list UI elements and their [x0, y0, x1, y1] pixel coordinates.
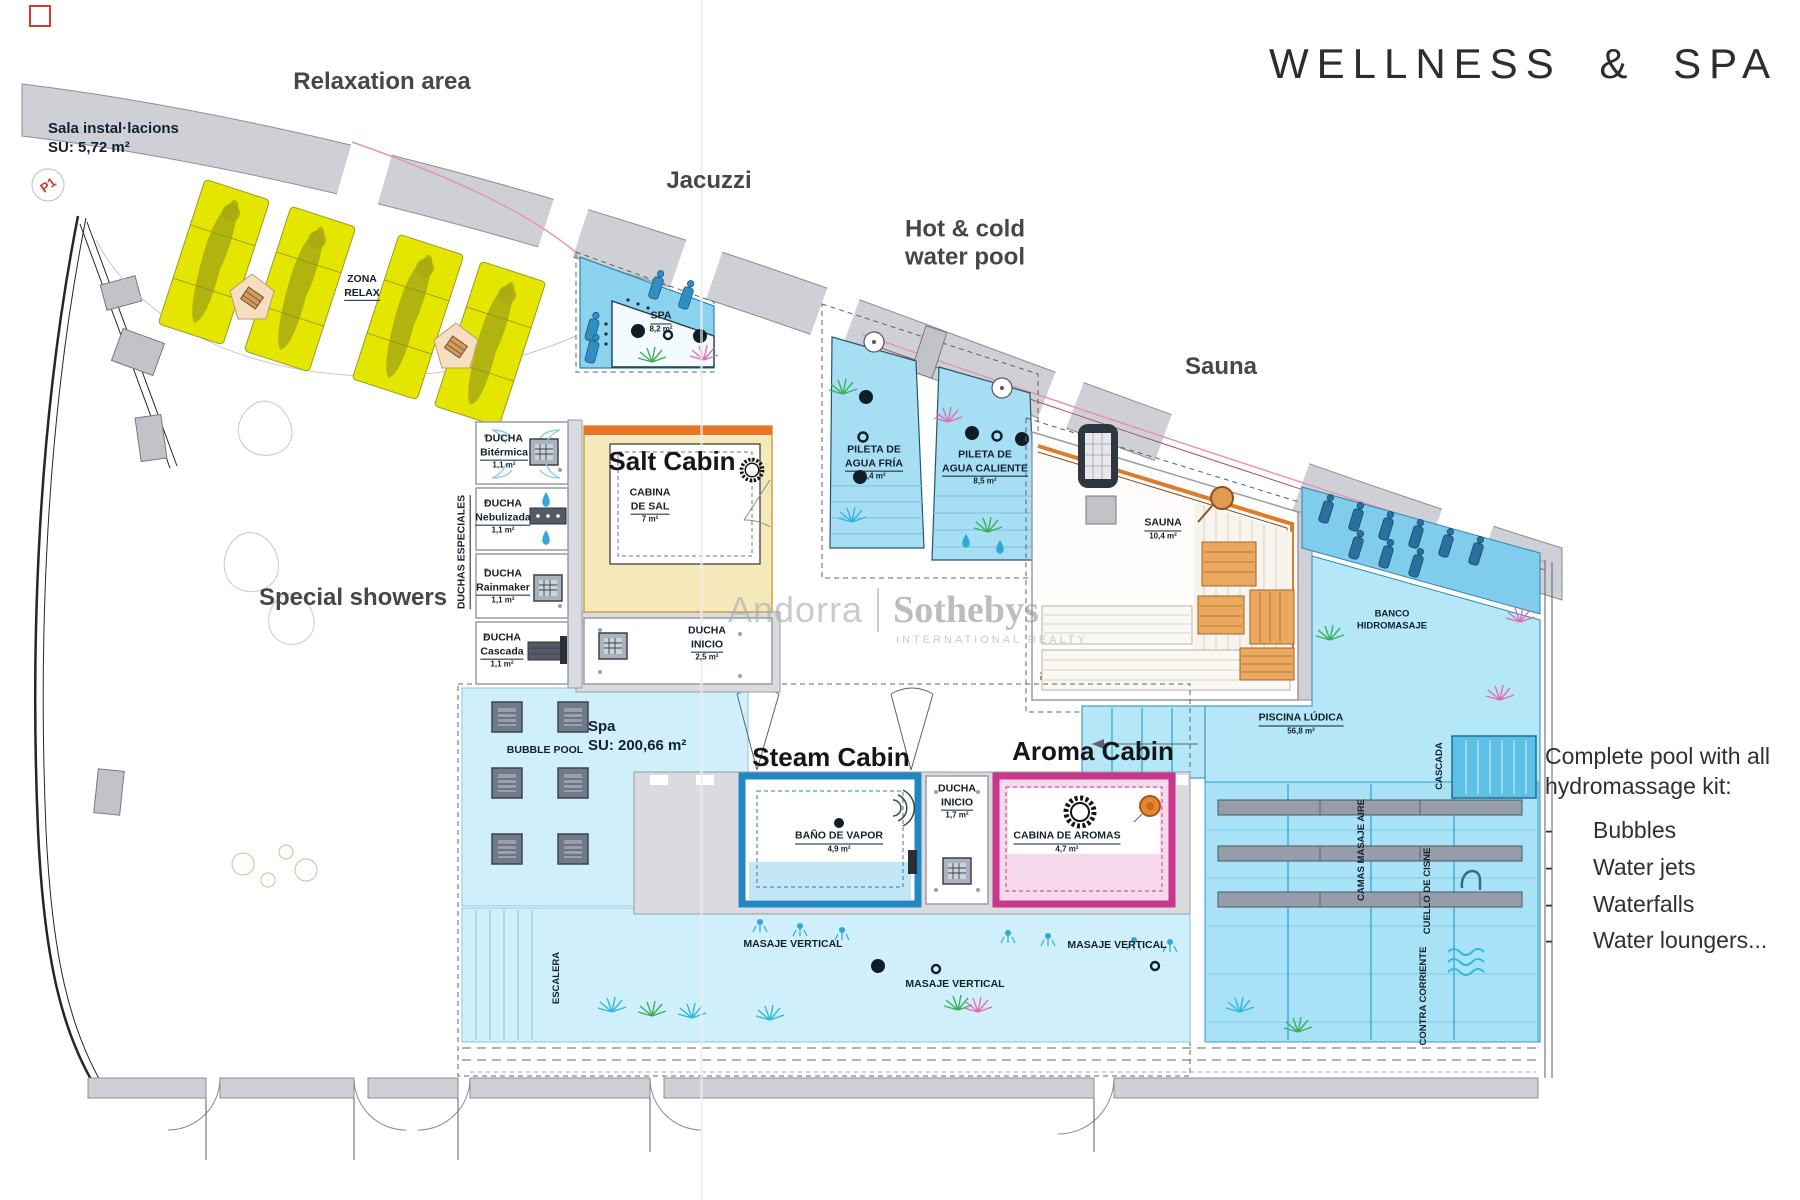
note-item: -Water loungers... — [1545, 926, 1800, 956]
note-line-2: hydromassage kit: — [1545, 772, 1800, 802]
label-ducha-inicio-bottom: DUCHA INICIO 1,7 m² — [938, 783, 976, 822]
watermark: Andorra Sothebys INTERNATIONAL REALTY — [728, 588, 1088, 646]
bottom-walls — [88, 1078, 1538, 1160]
label-cabina-de-sal: CABINA DE SAL 7 m² — [630, 487, 671, 526]
label-sauna-room: SAUNA 10,4 m² — [1144, 516, 1181, 541]
label-cuello-de-cisne: CUELLO DE CISNE — [1422, 848, 1434, 935]
label-spa-pool: SPA 8,2 m² — [649, 309, 672, 334]
label-ducha-inicio-top: DUCHA INICIO 2,5 m² — [688, 625, 726, 664]
note-item: -Bubbles — [1545, 816, 1800, 846]
label-masaje-vertical-3: MASAJE VERTICAL — [1067, 939, 1166, 953]
label-pileta-agua-caliente: PILETA DE AGUA CALIENTE 8,5 m² — [942, 449, 1028, 488]
watermark-name: Sothebys — [893, 588, 1039, 632]
pool-kit-note: Complete pool with all hydromassage kit:… — [1545, 742, 1800, 956]
label-sala-installacions: Sala instal·lacionsSU: 5,72 m² — [48, 120, 179, 158]
hot-cold-pools — [822, 304, 1038, 578]
label-ducha-nebulizada: DUCHA Nebulizada 1,1 m² — [475, 498, 530, 537]
note-line-1: Complete pool with all — [1545, 742, 1800, 772]
label-contra-corriente: CONTRA CORRIENTE — [1418, 947, 1430, 1046]
label-masaje-vertical-2: MASAJE VERTICAL — [905, 978, 1004, 992]
label-banco-hidromasaje: BANCO HIDROMASAJE — [1357, 609, 1427, 634]
watermark-tagline: INTERNATIONAL REALTY — [896, 634, 1088, 646]
label-zona-relax: ZONA RELAX — [344, 273, 380, 301]
heading-salt-cabin: Salt Cabin — [608, 447, 735, 477]
label-ducha-cascada: DUCHA Cascada 1,1 m² — [480, 632, 523, 671]
label-duchas-especiales: DUCHAS ESPECIALES — [456, 495, 471, 609]
heading-relaxation-area: Relaxation area — [293, 68, 470, 96]
watermark-divider — [877, 588, 879, 632]
page-title: WELLNESS & SPA — [1269, 40, 1778, 88]
heading-sauna: Sauna — [1185, 353, 1257, 381]
label-camas-masaje-aire: CAMAS MASAJE AIRE — [1356, 799, 1368, 901]
label-spa-su: SpaSU: 200,66 m² — [588, 718, 686, 756]
label-bano-de-vapor: BAÑO DE VAPOR 4,9 m² — [795, 829, 883, 854]
heading-hot-cold-pool: Hot & cold water pool — [905, 215, 1025, 270]
label-escalera: ESCALERA — [551, 952, 563, 1004]
heading-special-showers: Special showers — [259, 584, 447, 612]
label-cabina-de-aromas: CABINA DE AROMAS 4,7 m² — [1013, 829, 1120, 854]
label-piscina-ludica: PISCINA LÚDICA 56,8 m² — [1259, 711, 1344, 736]
heading-jacuzzi: Jacuzzi — [666, 167, 751, 195]
note-item: -Water jets — [1545, 853, 1800, 883]
label-cascada: CASCADA — [1434, 742, 1446, 790]
wellness-spa-floor-plan: Andorra Sothebys INTERNATIONAL REALTY WE… — [0, 0, 1800, 1200]
label-ducha-bitermica: DUCHA Bitérmica 1,1 m² — [480, 433, 528, 472]
label-pileta-agua-fria: PILETA DE AGUA FRÍA 5,4 m² — [845, 444, 903, 483]
label-masaje-vertical-1: MASAJE VERTICAL — [743, 938, 842, 952]
heading-aroma-cabin: Aroma Cabin — [1012, 737, 1174, 767]
label-bubble-pool: BUBBLE POOL — [507, 744, 583, 758]
watermark-brand: Andorra — [728, 589, 863, 631]
note-item: -Waterfalls — [1545, 890, 1800, 920]
heading-steam-cabin: Steam Cabin — [752, 743, 910, 773]
label-ducha-rainmaker: DUCHA Rainmaker 1,1 m² — [476, 568, 530, 607]
